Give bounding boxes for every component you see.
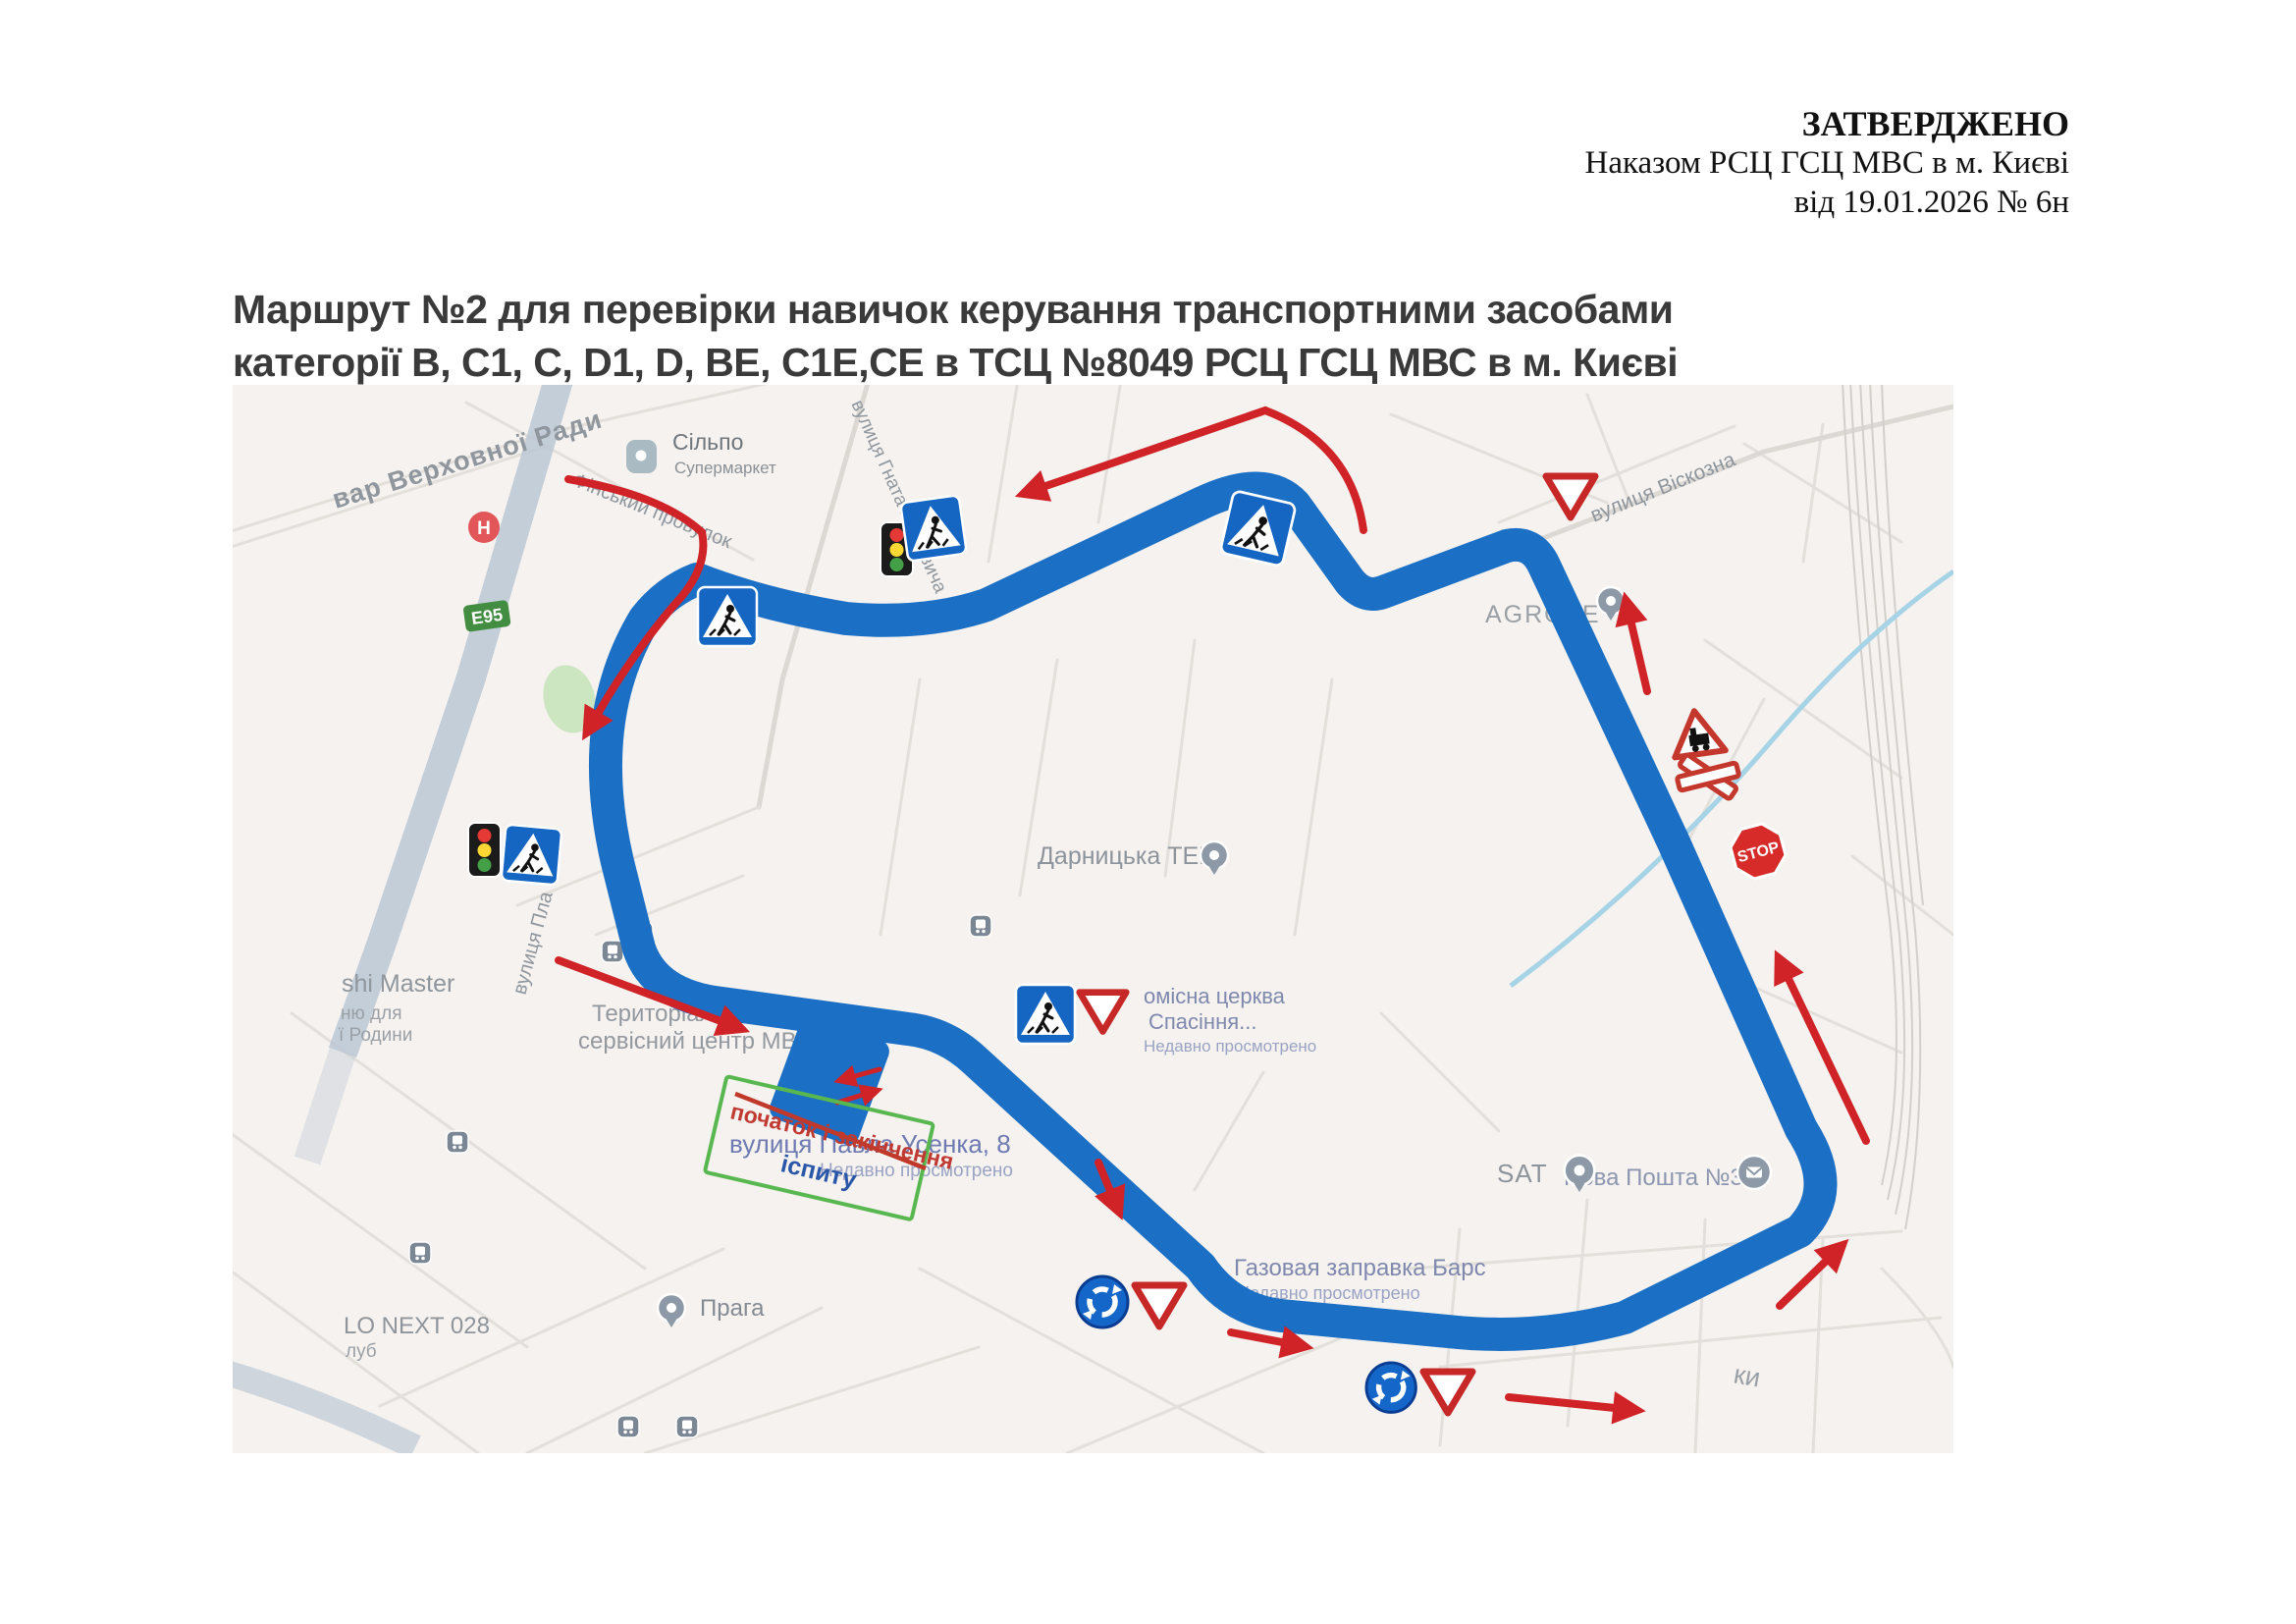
hospital-icon: H xyxy=(468,512,500,543)
route-title: Маршрут №2 для перевірки навичок керуван… xyxy=(233,283,1705,389)
poi-label-church1: омісна церква xyxy=(1144,984,1286,1008)
transit-stop-3 xyxy=(970,915,991,937)
route-title-line2: категорії B, C1, C, D1, D, BE, C1E,CE в … xyxy=(233,336,1705,389)
give-way-sign-roundabout2 xyxy=(1423,1372,1472,1413)
poi-label-tsc2: сервісний центр МВС xyxy=(578,1028,813,1055)
arrow-bottom-east2 xyxy=(1509,1397,1634,1410)
praha-pin-icon xyxy=(658,1294,685,1327)
poi-label-silpo: Сільпо xyxy=(672,429,743,455)
poi-label-church3: Недавно просмотрено xyxy=(1144,1037,1316,1056)
approval-line3: від 19.01.2026 № 6н xyxy=(1584,183,2069,222)
silpo-store-icon xyxy=(626,440,657,473)
stop-sign: STOP xyxy=(1727,820,1789,883)
give-way-sign-viskozna xyxy=(1546,476,1595,517)
poi-label-tec: Дарницька ТЕЦ xyxy=(1038,842,1217,870)
agrotech-pin-icon xyxy=(1597,587,1625,621)
svg-text:H: H xyxy=(477,518,491,539)
street-label-viskozna: вулиця Віскозна xyxy=(1587,448,1738,526)
transit-stop-7 xyxy=(676,1416,698,1437)
give-way-sign-roundabout1 xyxy=(1135,1285,1184,1326)
approval-line1: ЗАТВЕРДЖЕНО xyxy=(1584,104,2069,143)
poi-label-sat: SAT xyxy=(1497,1159,1548,1188)
poi-label-sushi3: ї Родини xyxy=(338,1025,412,1046)
railway-sign xyxy=(1669,708,1726,758)
poi-label-velo: LO NEXT 028 xyxy=(344,1313,490,1339)
document-page: ЗАТВЕРДЖЕНО Наказом РСЦ ГСЦ МВС в м. Киє… xyxy=(0,0,2296,1624)
arrow-bottom-east1 xyxy=(1231,1332,1303,1346)
e95-route-badge: E95 xyxy=(462,600,510,632)
route-map: вар Верховної Ради Фінський провулок Сіл… xyxy=(233,385,1953,1453)
poi-label-silpo-sub: Супермаркет xyxy=(674,459,776,477)
transit-stop-6 xyxy=(617,1416,639,1437)
arrow-agrotech-north xyxy=(1627,603,1647,691)
poi-label-sushi: shi Master xyxy=(342,970,454,998)
map-canvas: вар Верховної Ради Фінський провулок Сіл… xyxy=(233,385,1953,1453)
poi-label-klub: луб xyxy=(346,1341,377,1362)
transit-stop-4 xyxy=(447,1131,468,1153)
crosswalk-sign-topright xyxy=(1220,490,1297,567)
street-label-verkhovna: вар Верховної Ради xyxy=(329,405,606,514)
boulevard-road xyxy=(233,385,559,1447)
roundabout-sign-2 xyxy=(1366,1363,1415,1412)
exam-route-line xyxy=(606,488,1821,1333)
transit-stop-5 xyxy=(409,1242,431,1264)
crosswalk-sign-left xyxy=(502,825,562,886)
give-way-sign-centre xyxy=(1080,993,1127,1032)
poshta-pin-icon xyxy=(1737,1156,1771,1189)
route-title-line1: Маршрут №2 для перевірки навичок керуван… xyxy=(233,283,1705,336)
poi-label-sushi2: ню для xyxy=(341,1003,401,1024)
approval-block: ЗАТВЕРДЖЕНО Наказом РСЦ ГСЦ МВС в м. Киє… xyxy=(1584,104,2069,222)
poi-label-gas: Газовая заправка Барс xyxy=(1234,1255,1486,1281)
crosswalk-sign-top xyxy=(900,495,967,562)
street-label-partial: ки xyxy=(1732,1359,1763,1392)
approval-line2: Наказом РСЦ ГСЦ МВС в м. Києві xyxy=(1584,143,2069,183)
traffic-light-sign-left xyxy=(468,823,501,877)
arrow-corner-northeast xyxy=(1780,1247,1841,1306)
transit-stop-2 xyxy=(602,941,623,962)
poi-label-praha: Прага xyxy=(700,1295,765,1322)
crosswalk-sign-topleft xyxy=(698,587,757,646)
roundabout-sign-1 xyxy=(1077,1276,1128,1327)
crosswalk-sign-centre xyxy=(1016,985,1075,1044)
poi-label-church2: Спасіння... xyxy=(1148,1009,1256,1034)
